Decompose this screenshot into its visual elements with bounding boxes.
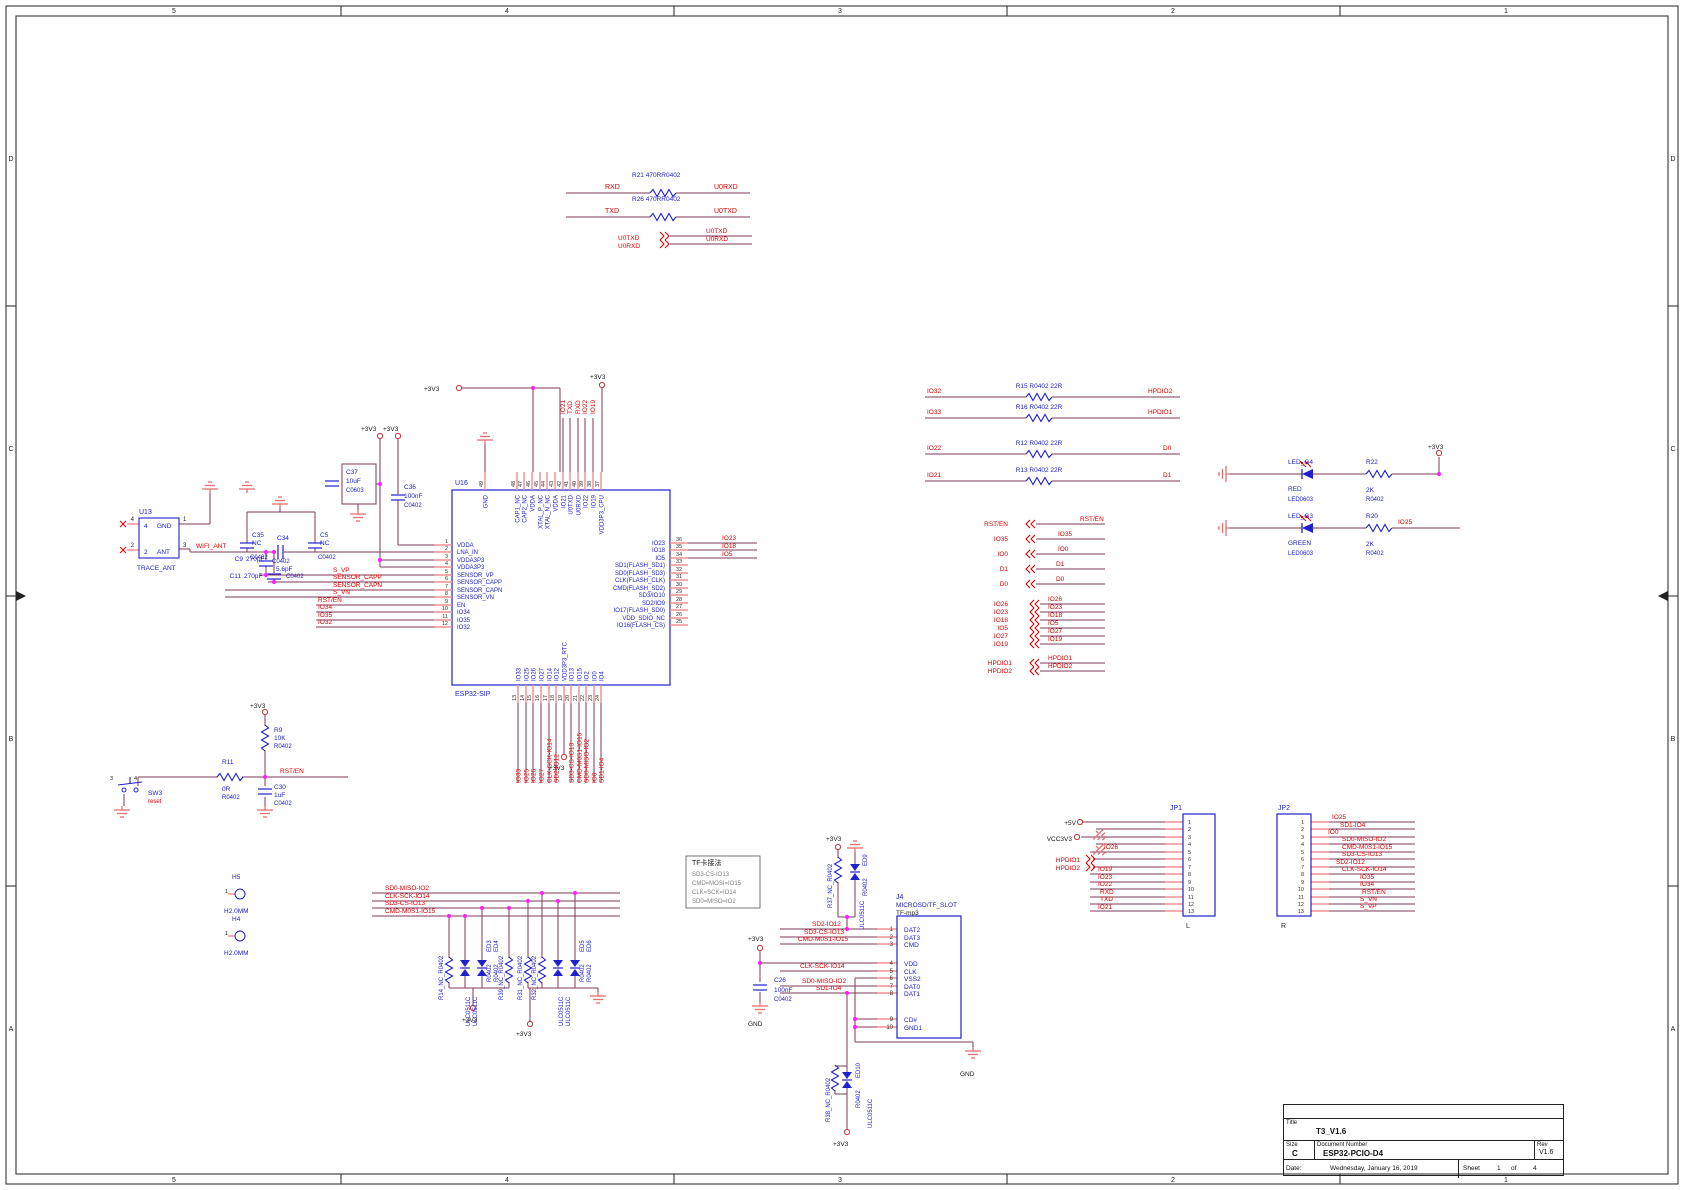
component-label[interactable]: C34: [277, 535, 289, 542]
net-label[interactable]: HPDIO2: [1048, 663, 1073, 670]
component-label[interactable]: J4: [896, 894, 904, 901]
bus-chevron-icon: [1026, 520, 1035, 528]
pin-number: 43: [549, 481, 555, 487]
component-label[interactable]: ANT: [157, 549, 170, 556]
net-label[interactable]: IO27: [539, 769, 546, 783]
component-label[interactable]: R15 R0402 22R: [1016, 383, 1063, 390]
net-label[interactable]: IO32: [318, 619, 332, 626]
pin-number: 12: [1188, 902, 1194, 908]
component-label[interactable]: C0402: [272, 559, 290, 565]
junction-dot: [556, 899, 560, 903]
border-column-label: 4: [505, 1177, 509, 1184]
net-label[interactable]: IO25: [524, 769, 531, 783]
net-label[interactable]: U0RXD: [706, 236, 728, 243]
pin-name: IO34: [457, 610, 471, 616]
switch-symbol[interactable]: [122, 788, 126, 792]
pin-number: 23: [588, 695, 594, 701]
pin-number: 12: [1298, 902, 1304, 908]
component-label[interactable]: R0402: [274, 744, 292, 750]
net-label[interactable]: HPDIO2: [1148, 388, 1173, 395]
net-label[interactable]: HPDIO1: [1148, 409, 1173, 416]
component-label[interactable]: LED_G4: [1288, 459, 1313, 466]
component-label[interactable]: 5.6pF: [276, 566, 293, 573]
junction-dot: [531, 386, 535, 390]
net-label[interactable]: IO35: [1360, 874, 1374, 881]
component-label[interactable]: LED0603: [1288, 497, 1314, 503]
pin-number: 11: [1188, 895, 1194, 901]
net-label[interactable]: SD0-MISO-IO2: [1342, 836, 1386, 843]
pin-number: 25: [676, 619, 682, 625]
junction-dot: [573, 891, 577, 895]
pin-number: 46: [526, 481, 532, 487]
component-label[interactable]: ULC0511C: [868, 1098, 874, 1128]
title-block-bottom-row: Date: Wednesday, January 16, 2019 Sheet …: [1284, 1160, 1563, 1178]
component-label[interactable]: GREEN: [1288, 540, 1311, 547]
component-label[interactable]: R21 470RR0402: [632, 172, 681, 179]
net-label[interactable]: IO0: [1328, 829, 1339, 836]
net-label[interactable]: IO33: [516, 769, 523, 783]
pin-name: EN: [457, 603, 465, 609]
pin-number: 27: [676, 604, 682, 610]
component-label[interactable]: R16 R0402 22R: [1016, 404, 1063, 411]
bus-chevron-icon: [1030, 624, 1039, 632]
resistor-symbol[interactable]: [835, 857, 842, 883]
net-label[interactable]: HPDIO1: [1048, 655, 1073, 662]
text-label: +3V3: [826, 836, 842, 843]
component-label[interactable]: R0402: [222, 795, 240, 801]
junction-dot: [264, 550, 268, 554]
net-label[interactable]: SENSOR_CAPN: [333, 582, 382, 589]
diode-symbol[interactable]: [460, 969, 470, 976]
component-label[interactable]: C0402: [404, 503, 422, 509]
net-label[interactable]: SD0-MISO-IO2: [584, 739, 591, 783]
doc-value: ESP32-PCIO-D4: [1323, 1149, 1383, 1158]
net-label[interactable]: RST/EN: [318, 597, 342, 604]
component-label[interactable]: RED: [1288, 486, 1302, 493]
pin-name: IO16(FLASH_CS): [617, 623, 665, 629]
led-symbol[interactable]: [1302, 469, 1313, 479]
net-label[interactable]: IO18: [994, 617, 1008, 624]
component-label[interactable]: R0402: [1366, 497, 1384, 503]
net-label[interactable]: U0RXD: [714, 184, 738, 191]
component-label[interactable]: R0402: [494, 964, 500, 982]
border-mid-arrow-icon: [1658, 591, 1668, 601]
net-label[interactable]: RXD: [1100, 889, 1114, 896]
resistor-symbol[interactable]: [1026, 451, 1052, 458]
component-label[interactable]: 270pF: [244, 573, 262, 580]
component-label[interactable]: C0402: [286, 574, 304, 580]
note-text: SD0=MISO=IO2: [692, 899, 736, 905]
component-label[interactable]: 1uF: [274, 792, 285, 799]
text-label: TF-mp3: [896, 910, 919, 917]
component-label[interactable]: GND: [157, 523, 172, 530]
net-label[interactable]: SD1-IO4: [816, 985, 842, 992]
net-label[interactable]: IO22: [927, 445, 941, 452]
border-column-label: 5: [172, 1177, 176, 1184]
junction-dot: [263, 775, 267, 779]
pin-number: 13: [512, 695, 518, 701]
diode-symbol[interactable]: [850, 873, 860, 880]
pin-number: 6: [1188, 857, 1191, 863]
net-label[interactable]: IO26: [1048, 596, 1062, 603]
net-label[interactable]: WIFI_ANT: [196, 543, 226, 550]
diode-symbol[interactable]: [477, 969, 487, 976]
resistor-symbol[interactable]: [525, 957, 532, 983]
resistor-symbol[interactable]: [832, 1065, 839, 1091]
net-label[interactable]: IO34: [1360, 881, 1374, 888]
net-label[interactable]: IO21: [1098, 904, 1112, 911]
component-label[interactable]: ED10: [856, 1062, 862, 1078]
net-label[interactable]: IO34: [318, 604, 332, 611]
schematic-title: T3_V1.6: [1316, 1127, 1346, 1136]
diode-symbol[interactable]: [553, 960, 563, 967]
net-label[interactable]: IO27: [994, 633, 1008, 640]
component-label[interactable]: R0402: [487, 964, 493, 982]
net-label[interactable]: IO26: [994, 601, 1008, 608]
net-label[interactable]: IO25: [1398, 519, 1412, 526]
component-label[interactable]: R11: [222, 759, 234, 766]
sheet-number: 1: [1497, 1165, 1501, 1172]
net-label[interactable]: IO5: [1048, 620, 1059, 627]
component-label[interactable]: ULC0511C: [559, 996, 565, 1026]
component-label[interactable]: C0402: [318, 555, 336, 561]
diode-symbol[interactable]: [460, 960, 470, 967]
net-label[interactable]: reset: [148, 799, 162, 805]
net-label[interactable]: IO5: [722, 551, 733, 558]
component-label[interactable]: 2K: [1366, 541, 1375, 548]
pin-name: IO12: [555, 667, 561, 681]
component-label[interactable]: 100nF: [774, 987, 792, 994]
net-label[interactable]: SD2-IO12: [1336, 859, 1365, 866]
net-label[interactable]: S_VN: [1360, 896, 1377, 903]
pin-name: IO14: [548, 667, 554, 681]
component-label[interactable]: C37: [346, 469, 358, 476]
net-label[interactable]: RXD: [575, 400, 582, 414]
net-label[interactable]: IO35: [994, 536, 1008, 543]
pin-number: 3: [445, 554, 448, 560]
net-label[interactable]: IO23: [1048, 604, 1062, 611]
net-label[interactable]: HPDIO2: [1056, 865, 1081, 872]
net-label[interactable]: SD3-CS-IO13: [569, 743, 576, 783]
resistor-symbol[interactable]: [506, 957, 513, 983]
size-label: Size: [1286, 1142, 1298, 1148]
component-label[interactable]: R32_NC_R0402: [532, 955, 538, 1000]
title-block-title-row: Title T3_V1.6: [1284, 1119, 1563, 1141]
diode-symbol[interactable]: [570, 960, 580, 967]
bus-chevron-icon: [1026, 550, 1035, 558]
pin-number: 39: [579, 481, 585, 487]
net-label[interactable]: IO25: [1332, 814, 1346, 821]
component-label[interactable]: MICROSD/TF_SLOT: [896, 902, 957, 909]
net-label[interactable]: IO22: [582, 400, 589, 414]
component-label[interactable]: R0402: [587, 964, 593, 982]
component-label[interactable]: ED3: [487, 940, 493, 952]
junction-dot: [272, 580, 276, 584]
net-label[interactable]: RST/EN: [1362, 889, 1386, 896]
power-symbol: [757, 945, 762, 950]
net-label[interactable]: D1: [1163, 472, 1172, 479]
net-label[interactable]: D1: [1056, 561, 1065, 568]
pin-number: 45: [534, 481, 540, 487]
net-label[interactable]: IO33: [927, 409, 941, 416]
pin-name: IO19: [592, 494, 598, 508]
component-label[interactable]: H2.0MM: [224, 950, 249, 957]
net-label[interactable]: SD0-MISO-IO2: [802, 978, 846, 985]
component-label[interactable]: C0402: [274, 801, 292, 807]
resistor-symbol[interactable]: [1026, 478, 1052, 485]
resistor-symbol[interactable]: [1026, 415, 1052, 422]
component-label[interactable]: R26 470RR0402: [632, 196, 681, 203]
resistor-symbol[interactable]: [1366, 525, 1392, 532]
net-label[interactable]: IO23: [1098, 874, 1112, 881]
net-label[interactable]: HPDIO1: [988, 660, 1013, 667]
component-label[interactable]: LED0603: [1288, 551, 1314, 557]
net-label[interactable]: S_VP: [1360, 903, 1377, 910]
text-label: +3V3: [748, 936, 764, 943]
pin-name: SENSOR_CAPN: [457, 588, 502, 594]
net-label[interactable]: CMD-M0S1-IO15: [385, 908, 436, 915]
net-label[interactable]: RST/EN: [984, 521, 1008, 528]
component-label[interactable]: 2: [144, 549, 148, 556]
component-label[interactable]: C36: [404, 484, 416, 491]
net-label[interactable]: D1: [1000, 566, 1009, 573]
component-label[interactable]: R13 R0402 22R: [1016, 467, 1063, 474]
net-label[interactable]: D0: [1000, 581, 1009, 588]
ground-symbol: [272, 497, 288, 508]
component-label[interactable]: R0402: [1366, 551, 1384, 557]
net-label[interactable]: CMD-M0S1-IO15: [798, 936, 849, 943]
net-label[interactable]: U0TXD: [714, 208, 737, 215]
border-row-label: D: [8, 156, 13, 163]
component-label[interactable]: C11: [230, 573, 242, 580]
component-label[interactable]: R9: [274, 727, 283, 734]
component-label[interactable]: R20: [1366, 513, 1378, 520]
net-label[interactable]: IO0: [998, 551, 1009, 558]
net-label[interactable]: U0TXD: [618, 235, 640, 242]
ground-symbol: [1090, 825, 1109, 844]
ground-symbol: [847, 841, 863, 852]
component-label[interactable]: U16: [455, 480, 468, 487]
component-label[interactable]: R37_NC_R0402: [828, 863, 834, 908]
net-label[interactable]: IO23: [722, 535, 736, 542]
resistor-symbol[interactable]: [446, 957, 453, 983]
pin-number: 31: [676, 574, 682, 580]
bus-chevron-icon: [1026, 565, 1035, 573]
component-label[interactable]: ED9: [863, 854, 869, 866]
net-label[interactable]: S_VN: [333, 589, 350, 596]
net-label[interactable]: IO18: [1048, 612, 1062, 619]
component-label[interactable]: SW3: [148, 790, 162, 797]
net-label[interactable]: IO19: [590, 400, 597, 414]
resistor-symbol[interactable]: [1366, 471, 1392, 478]
net-label[interactable]: TXD: [567, 401, 574, 414]
junction-dot: [1437, 472, 1441, 476]
component-label[interactable]: C9: [235, 556, 244, 563]
component-label[interactable]: TRACE_ANT: [137, 565, 176, 572]
component-label[interactable]: ULC0511C: [860, 900, 866, 930]
component-label[interactable]: NC: [320, 540, 330, 547]
net-label[interactable]: SENSOR_CAPP: [333, 574, 382, 581]
component-label[interactable]: 100nF: [404, 493, 422, 500]
net-label[interactable]: IO19: [1098, 866, 1112, 873]
pin-name: U0RXD: [577, 494, 583, 515]
net-label[interactable]: CMD-M0S1-IO15: [577, 732, 584, 783]
pin-name: DAT0: [904, 984, 921, 991]
component-label[interactable]: R12 R0402 22R: [1016, 440, 1063, 447]
text-label: +3V3: [549, 765, 565, 772]
mounting-hole-symbol[interactable]: [235, 931, 245, 941]
net-label[interactable]: IO32: [927, 388, 941, 395]
power-symbol: [262, 709, 267, 714]
component-label[interactable]: C30: [274, 784, 286, 791]
resistor-symbol[interactable]: [217, 774, 243, 781]
net-label[interactable]: IO19: [1048, 636, 1062, 643]
component-label[interactable]: C26: [774, 977, 786, 984]
pin-number: 4: [445, 561, 448, 567]
net-label[interactable]: HPDIO2: [988, 668, 1013, 675]
component-label[interactable]: H4: [232, 916, 241, 923]
component-label[interactable]: 4: [144, 523, 148, 530]
net-label[interactable]: D0: [1056, 576, 1065, 583]
net-label[interactable]: IO26: [531, 769, 538, 783]
diode-symbol[interactable]: [842, 1072, 852, 1079]
resistor-symbol[interactable]: [539, 957, 546, 983]
net-label[interactable]: IO5: [998, 625, 1009, 632]
component-label[interactable]: JP2: [1278, 805, 1290, 812]
switch-symbol[interactable]: [134, 788, 138, 792]
diode-symbol[interactable]: [477, 960, 487, 967]
ground-symbol: [965, 1047, 981, 1058]
resistor-symbol[interactable]: [262, 725, 269, 751]
border-column-label: 2: [1171, 8, 1175, 15]
component-label[interactable]: C0603: [346, 488, 364, 494]
net-label[interactable]: RST/EN: [280, 768, 304, 775]
component-label[interactable]: U13: [139, 509, 152, 516]
component-label[interactable]: C0402: [774, 997, 792, 1003]
mounting-hole-symbol[interactable]: [235, 889, 245, 899]
net-label[interactable]: SD3-CS-IO13: [1342, 851, 1382, 858]
net-label[interactable]: SD2-IO12: [812, 921, 841, 928]
net-label[interactable]: IO35: [1058, 531, 1072, 538]
net-label[interactable]: IO18: [722, 543, 736, 550]
resistor-symbol[interactable]: [1026, 394, 1052, 401]
component-label[interactable]: 2K: [1366, 487, 1375, 494]
net-label[interactable]: IO35: [318, 612, 332, 619]
component-label[interactable]: 10uF: [346, 478, 361, 485]
net-label[interactable]: IO19: [994, 641, 1008, 648]
net-label[interactable]: HPDIO1: [1056, 857, 1081, 864]
net-label[interactable]: SD1-IO4: [599, 757, 606, 783]
component-label[interactable]: ULC0511C: [566, 996, 572, 1026]
rev-cell: Rev V1.6: [1535, 1141, 1563, 1159]
diode-symbol[interactable]: [570, 969, 580, 976]
component-label[interactable]: 0R: [222, 786, 231, 793]
pin-number: 40: [572, 481, 578, 487]
border-row-label: C: [1670, 446, 1675, 453]
net-label[interactable]: SD1-IO4: [1340, 822, 1366, 829]
net-label[interactable]: SD3-CS-IO13: [804, 929, 844, 936]
net-label[interactable]: IO0: [592, 772, 599, 783]
border-column-label: 3: [838, 8, 842, 15]
net-label[interactable]: IO23: [994, 609, 1008, 616]
pin-number: 26: [676, 612, 682, 618]
component-label[interactable]: LED_G3: [1288, 513, 1313, 520]
net-label[interactable]: CMD-M0S1-IO15: [1342, 844, 1393, 851]
resistor-symbol[interactable]: [650, 214, 676, 221]
component-label[interactable]: R14_NC_R0402: [439, 955, 445, 1000]
power-symbol: [561, 754, 566, 759]
text-label: 3: [183, 543, 187, 549]
net-label[interactable]: IO0: [1058, 546, 1069, 553]
component-label[interactable]: ED5: [580, 940, 586, 952]
border-column-label: 1: [1504, 8, 1508, 15]
component-label[interactable]: ED4: [494, 940, 500, 952]
net-label[interactable]: CLK-SCK-IO14: [800, 963, 845, 970]
pin-number: 15: [527, 695, 533, 701]
net-label[interactable]: RST/EN: [1080, 516, 1104, 523]
pin-name: CMD: [904, 942, 919, 949]
component-label[interactable]: H5: [232, 874, 241, 881]
bus-chevron-icon: [1030, 640, 1039, 648]
component-label[interactable]: R0402: [856, 1090, 862, 1108]
pin-number: 32: [676, 567, 682, 573]
pin-name: SD1(FLASH_SD1): [615, 563, 665, 569]
net-label[interactable]: TXD: [1100, 896, 1113, 903]
component-label[interactable]: 10K: [274, 735, 286, 742]
net-label[interactable]: TXD: [605, 208, 619, 215]
component-label[interactable]: R38_NC_R0402: [826, 1077, 832, 1122]
net-label[interactable]: SD0-MISO-IO2: [385, 885, 429, 892]
net-label[interactable]: D0: [1163, 445, 1172, 452]
net-label[interactable]: IO21: [927, 472, 941, 479]
net-label[interactable]: RXD: [605, 184, 620, 191]
pin-number: 2: [890, 935, 894, 941]
component-label[interactable]: R0402: [863, 878, 869, 896]
component-label[interactable]: H2.0MM: [224, 908, 249, 915]
component-label[interactable]: R22: [1366, 459, 1378, 466]
component-label[interactable]: C5: [320, 532, 329, 539]
diode-symbol[interactable]: [850, 864, 860, 871]
text-label: 1: [225, 889, 228, 895]
net-label[interactable]: CLK-SCK-IO14: [1342, 866, 1387, 873]
net-label[interactable]: IO21: [560, 400, 567, 414]
diode-symbol[interactable]: [553, 969, 563, 976]
led-symbol[interactable]: [1302, 523, 1313, 533]
text-label: +3V3: [516, 1031, 532, 1038]
component-label[interactable]: ESP32-SIP: [455, 691, 491, 698]
component-label[interactable]: JP1: [1170, 805, 1182, 812]
jp2-header-body[interactable]: [1277, 814, 1311, 916]
net-label[interactable]: U0RXD: [618, 243, 640, 250]
component-label[interactable]: NC: [252, 540, 262, 547]
component-label[interactable]: 270pF: [246, 556, 264, 563]
net-label[interactable]: IO27: [1048, 628, 1062, 635]
component-label[interactable]: R0402: [580, 964, 586, 982]
net-label[interactable]: U0TXD: [706, 228, 728, 235]
net-label[interactable]: SD3-CS-IO13: [385, 900, 425, 907]
net-label[interactable]: IO22: [1098, 881, 1112, 888]
junction-dot: [845, 927, 849, 931]
net-label[interactable]: CLK-SCK-IO14: [385, 893, 430, 900]
component-label[interactable]: R31_NC_R0402: [518, 955, 524, 1000]
net-label[interactable]: S_VP: [333, 567, 350, 574]
net-label[interactable]: CLK-SCK-IO14: [547, 738, 554, 783]
component-label[interactable]: ED6: [587, 940, 593, 952]
pin-name: VDD_SDIO_NC: [622, 616, 665, 622]
net-label[interactable]: IO26: [1104, 844, 1118, 851]
component-label[interactable]: C35: [252, 532, 264, 539]
diode-symbol[interactable]: [842, 1081, 852, 1088]
